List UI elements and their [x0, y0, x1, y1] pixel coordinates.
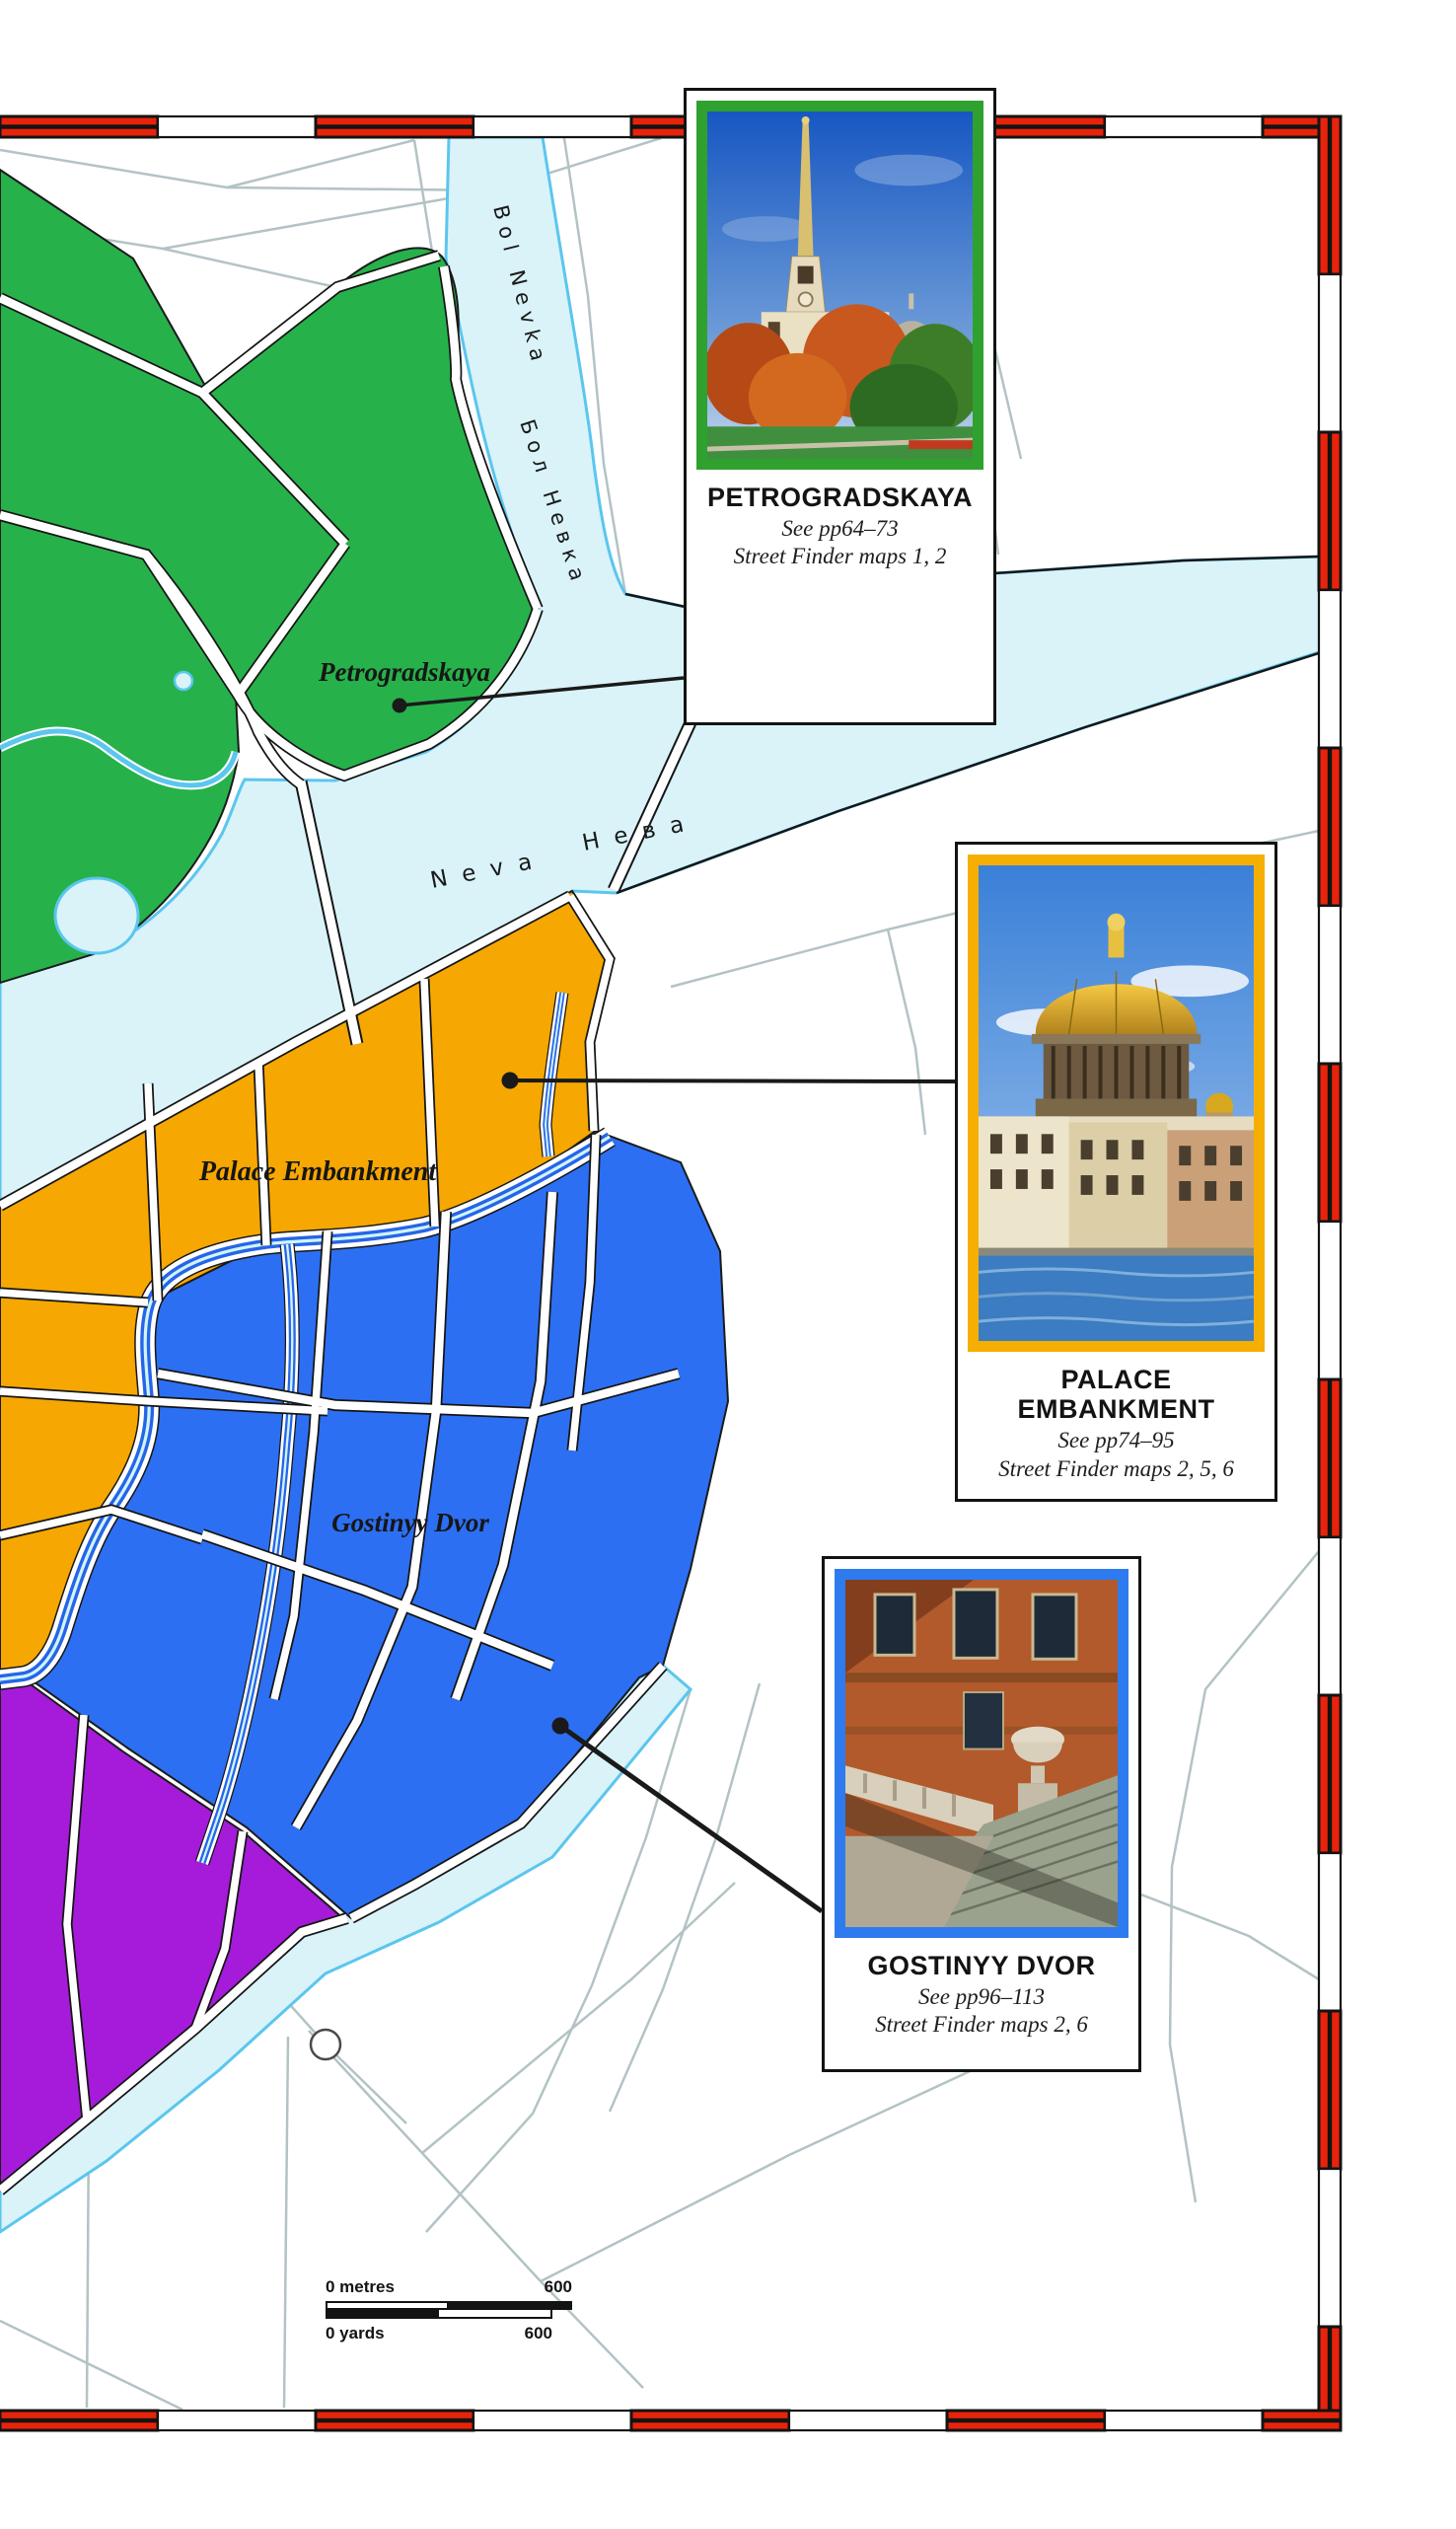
callout-street-finder: Street Finder maps 2, 6: [835, 2011, 1128, 2039]
scale-yards-label: 0 yards: [326, 2324, 385, 2343]
photo-frame-blue: [835, 1569, 1128, 1938]
area-label-petrogradskaya: Petrogradskaya: [318, 657, 490, 687]
photo-frame-orange: [968, 855, 1265, 1352]
page-border-bottom: [0, 2411, 1341, 2430]
area-label-palace-embankment: Palace Embankment: [198, 1156, 438, 1187]
photo-frame-green: [696, 101, 983, 470]
pond: [175, 672, 192, 690]
photo-palace-steps: [845, 1580, 1118, 1927]
callout-title: GOSTINYY DVOR: [835, 1951, 1128, 1980]
callout-street-finder: Street Finder maps 2, 5, 6: [968, 1455, 1265, 1483]
scale-bar: 0 metres 600 0 yards 600: [326, 2277, 574, 2343]
scale-metres-label: 0 metres: [326, 2277, 395, 2297]
callout-pages: See pp64–73: [696, 515, 983, 543]
lake: [55, 878, 138, 953]
callout-street-finder: Street Finder maps 1, 2: [696, 543, 983, 570]
page-border-right: [1319, 116, 1341, 2430]
area-label-gostinyy-dvor: Gostinyy Dvor: [331, 1508, 489, 1537]
page-border-top: [0, 116, 1341, 137]
photo-peter-paul-cathedral: [707, 112, 973, 459]
callout-title: PALACE EMBANKMENT: [968, 1365, 1265, 1424]
callout-title: PETROGRADSKAYA: [696, 483, 983, 512]
scale-bar-metres: [326, 2301, 572, 2310]
callout-petrogradskaya: PETROGRADSKAYA See pp64–73 Street Finder…: [684, 88, 996, 725]
callout-palace-embankment: PALACE EMBANKMENT See pp74–95 Street Fin…: [955, 842, 1277, 1502]
scale-yards-max: 600: [525, 2324, 552, 2343]
guidebook-map-page: Bol Nevka Бол Невка Neva Нева Petrograds…: [0, 0, 1456, 2529]
scale-metres-max: 600: [545, 2277, 572, 2297]
callout-pages: See pp96–113: [835, 1983, 1128, 2011]
callout-pages: See pp74–95: [968, 1427, 1265, 1454]
photo-st-isaacs-cathedral: [979, 865, 1254, 1341]
callout-gostinyy-dvor: GOSTINYY DVOR See pp96–113 Street Finder…: [822, 1556, 1141, 2072]
bridge-circle-symbol: [311, 2030, 340, 2059]
scale-bar-yards: [326, 2310, 552, 2319]
